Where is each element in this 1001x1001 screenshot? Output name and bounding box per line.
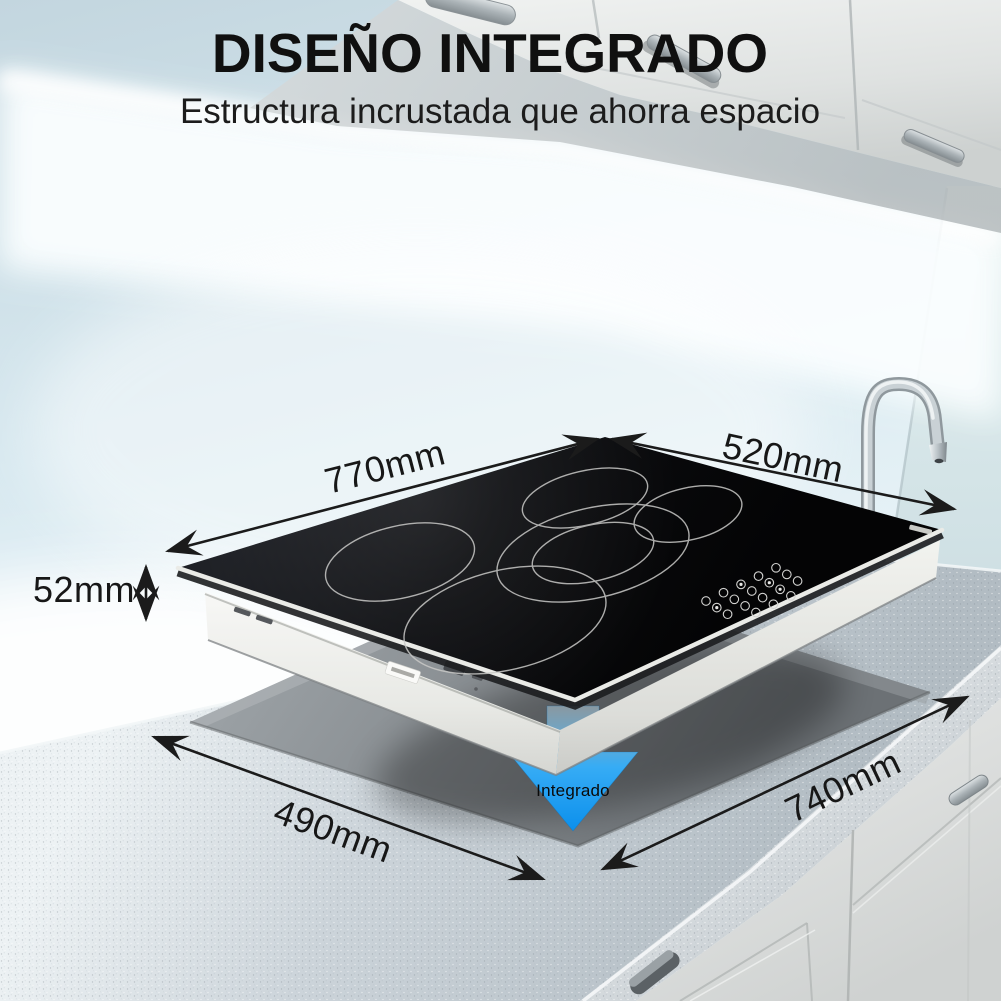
kitchen-scene <box>0 0 1001 1001</box>
product-infographic: DISEÑO INTEGRADO Estructura incrustada q… <box>0 0 1001 1001</box>
page-title: DISEÑO INTEGRADO <box>212 21 768 85</box>
control-dot-center <box>779 588 782 591</box>
control-dot-center <box>739 583 742 586</box>
page-subtitle: Estructura incrustada que ahorra espacio <box>180 92 820 132</box>
control-dot-center <box>715 606 718 609</box>
integrado-label: Integrado <box>536 781 610 801</box>
dim-label-52mm: 52mm <box>33 569 135 611</box>
control-dot-center <box>768 581 771 584</box>
